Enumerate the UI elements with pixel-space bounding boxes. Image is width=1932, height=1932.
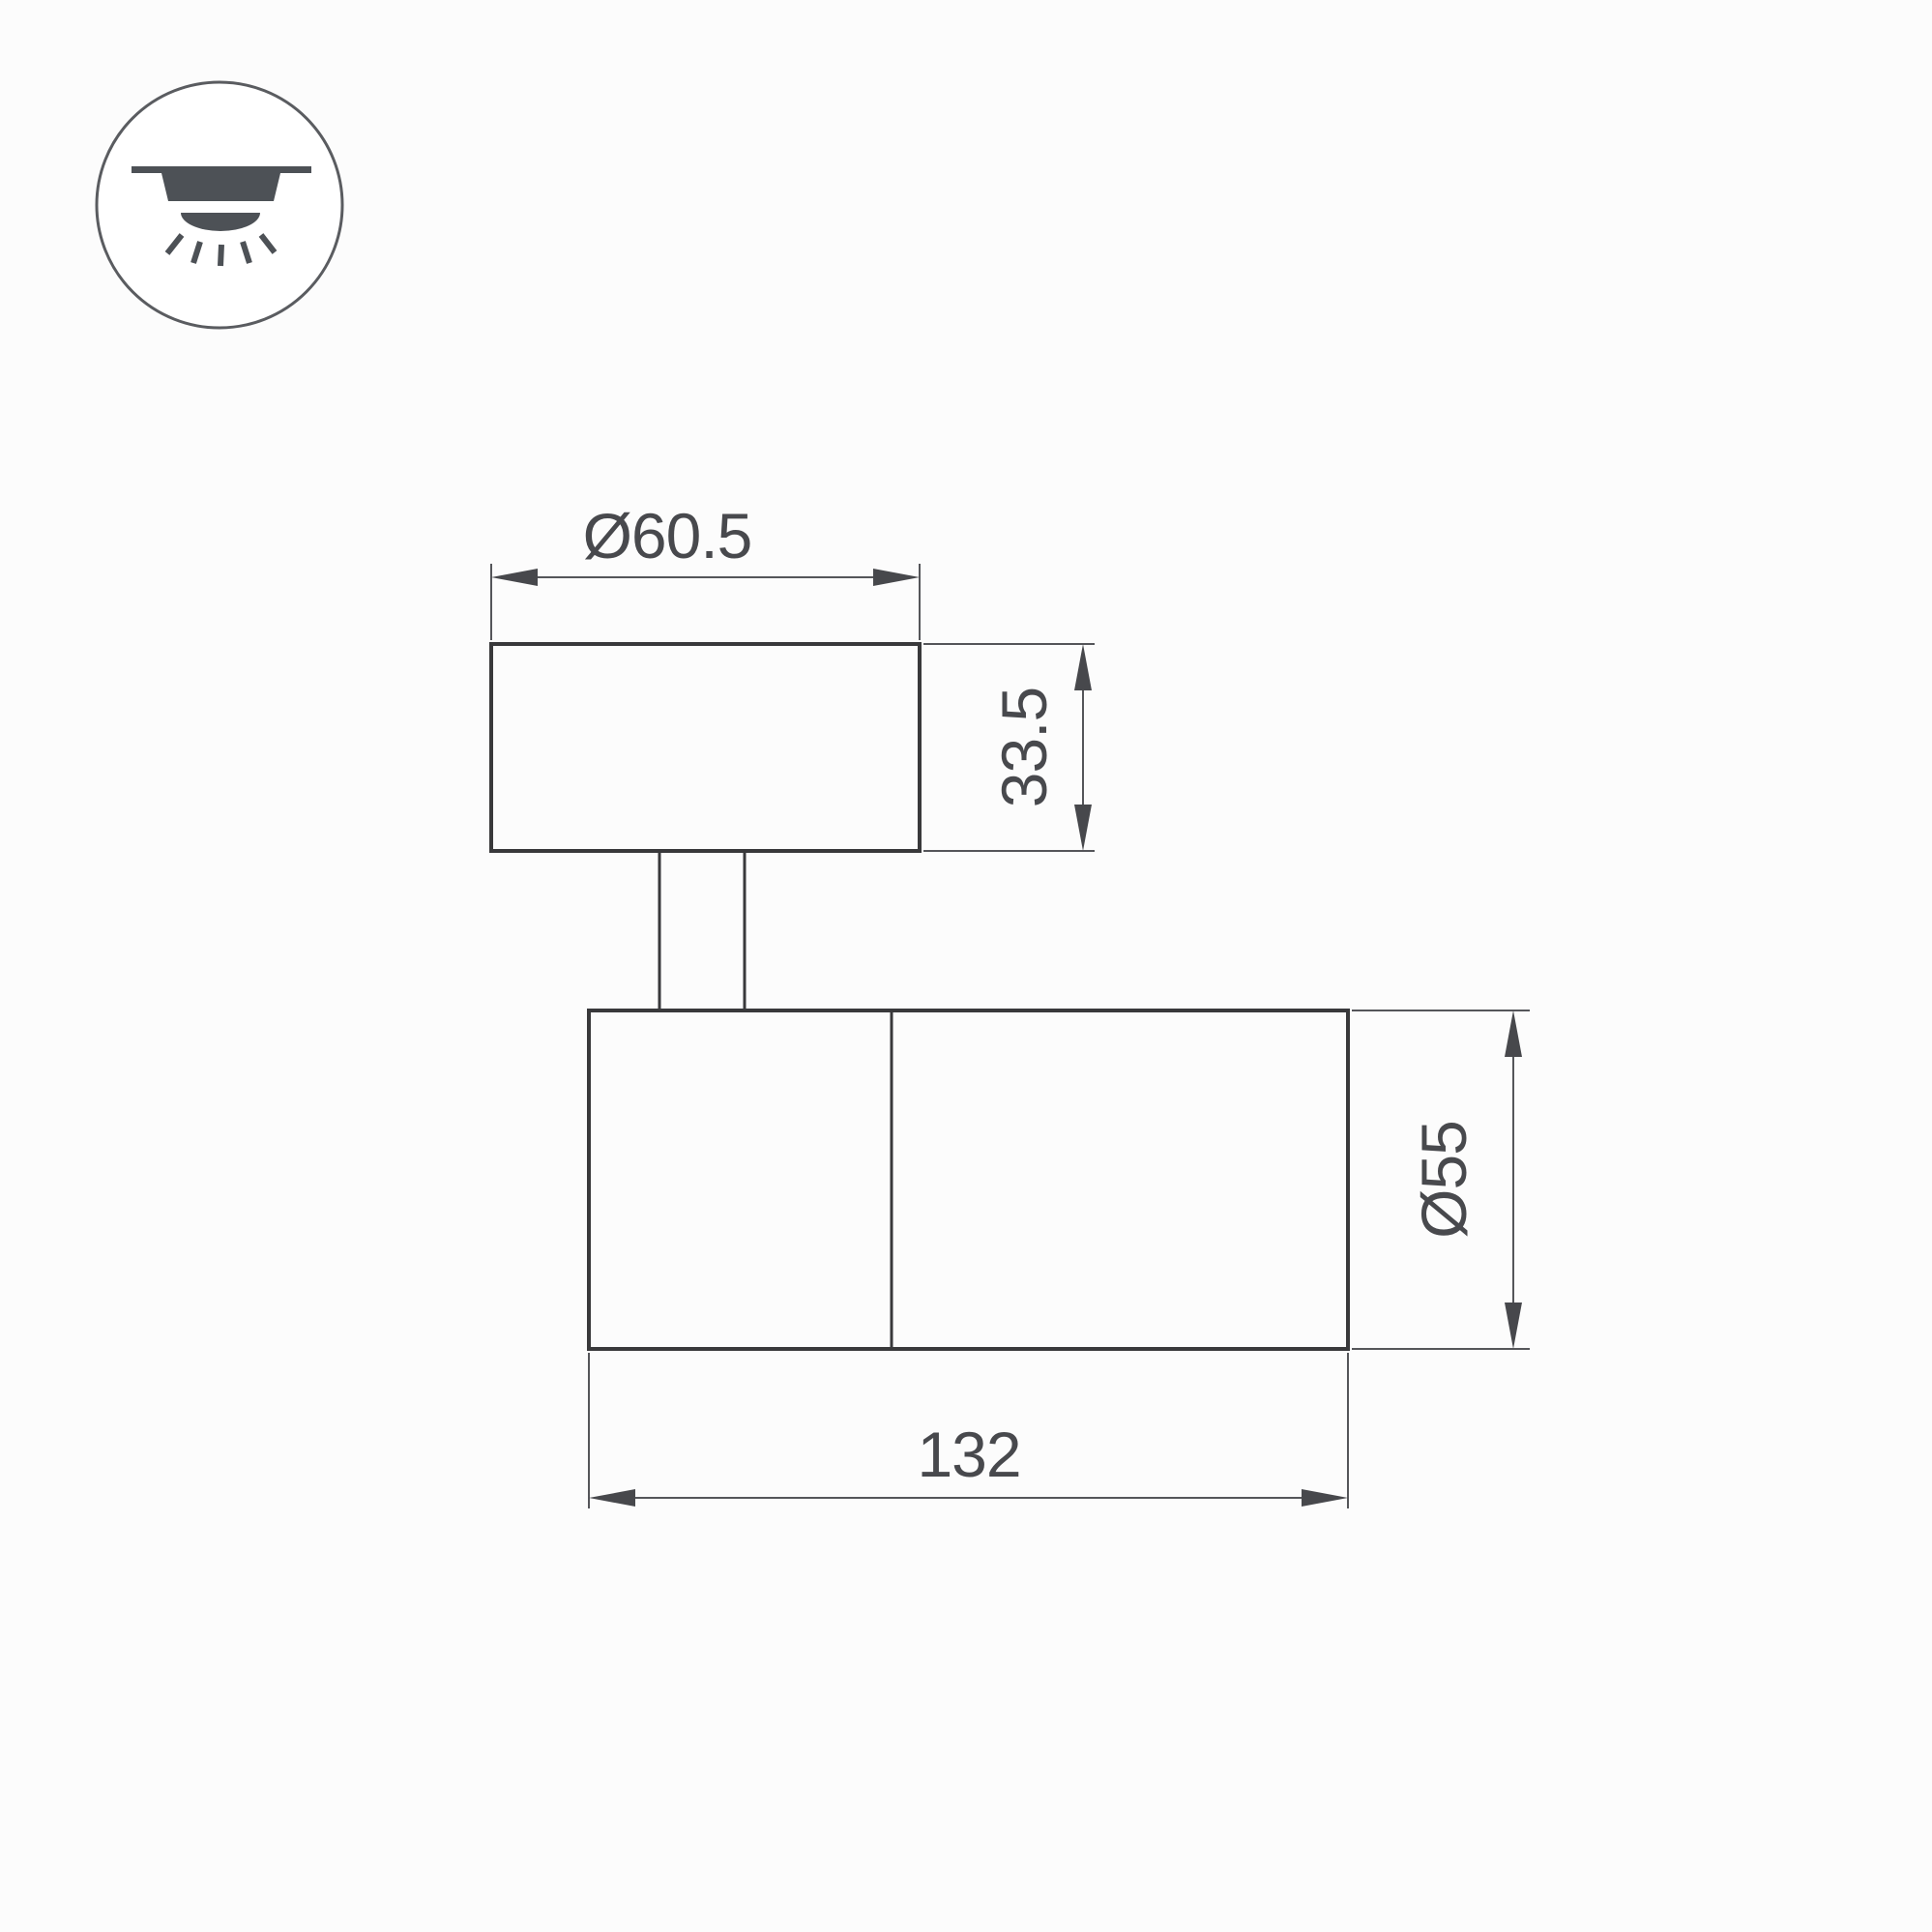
dimension-head-diameter: Ø60.5 [491,500,920,640]
dimension-head-height: 33.5 [923,644,1095,851]
surface-mount-light-icon [97,82,342,328]
arrowhead-down [1505,1303,1522,1349]
fixture-stem [659,851,745,1010]
dimension-body-diameter: Ø55 [1352,1010,1530,1349]
dimension-label-head-height: 33.5 [988,688,1060,807]
icon-circle-border [97,82,342,328]
arrowhead-right [873,569,920,586]
arrowhead-down [1074,805,1092,851]
technical-drawing-canvas: Ø60.5 33.5 Ø55 132 [0,0,1932,1932]
arrowhead-left [589,1489,635,1507]
icon-housing-block [161,173,280,201]
dimension-label-body-length: 132 [917,1419,1020,1490]
fixture-head-outline [491,644,920,851]
dimension-label-head-diameter: Ø60.5 [583,500,752,571]
arrowhead-left [491,569,538,586]
arrowhead-up [1074,644,1092,690]
dimension-label-body-diameter: Ø55 [1408,1121,1479,1239]
arrowhead-up [1505,1010,1522,1057]
arrowhead-right [1302,1489,1348,1507]
icon-ceiling-bar [132,166,311,173]
drawing-svg: Ø60.5 33.5 Ø55 132 [0,0,1932,1932]
dimension-body-length: 132 [589,1353,1348,1508]
fixture-body-outline [589,1010,1348,1349]
